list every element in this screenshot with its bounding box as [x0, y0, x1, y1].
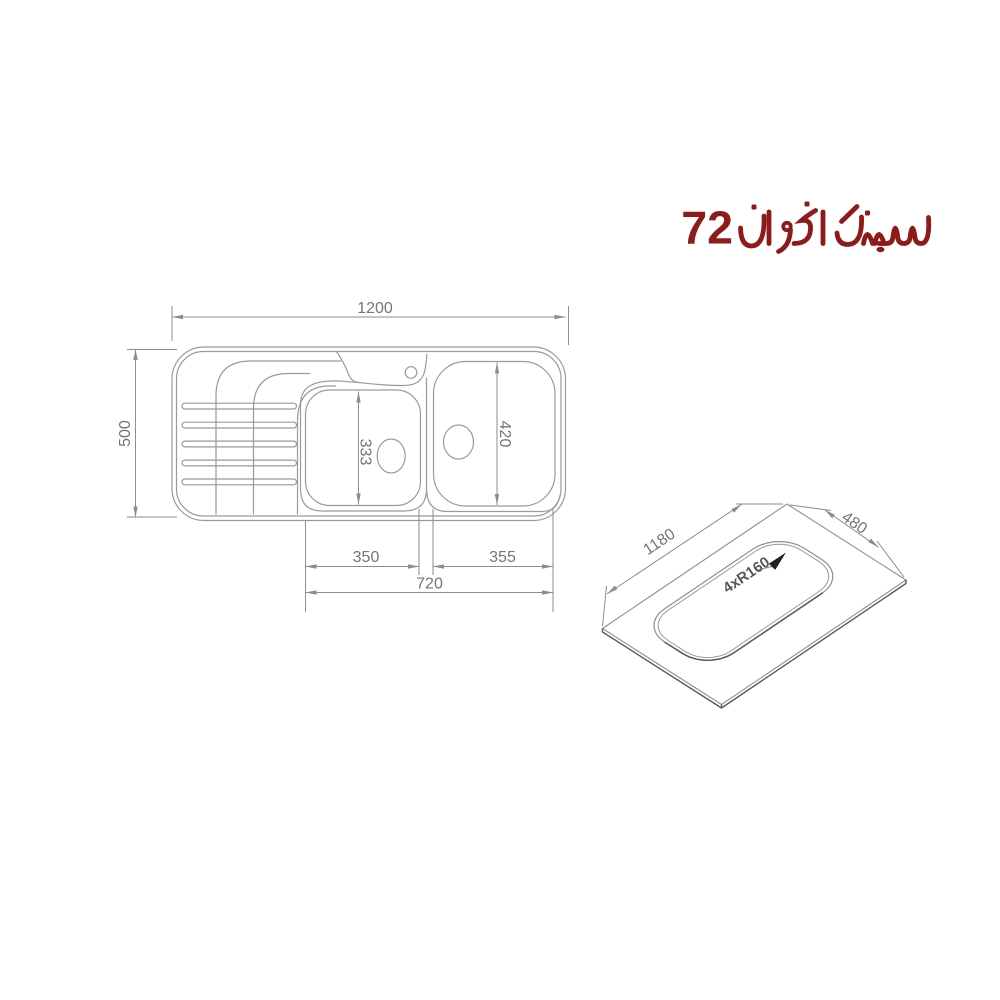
svg-text:500: 500	[117, 420, 134, 447]
svg-text:72: 72	[681, 202, 733, 254]
svg-text:355: 355	[489, 549, 516, 566]
svg-text:1200: 1200	[357, 300, 393, 317]
svg-text:4xR160: 4xR160	[720, 554, 773, 597]
svg-text:720: 720	[416, 576, 443, 593]
svg-text:333: 333	[357, 439, 374, 466]
svg-text:480: 480	[838, 509, 870, 538]
svg-text:350: 350	[353, 549, 380, 566]
svg-text:1180: 1180	[640, 526, 678, 559]
svg-text:420: 420	[496, 421, 513, 448]
